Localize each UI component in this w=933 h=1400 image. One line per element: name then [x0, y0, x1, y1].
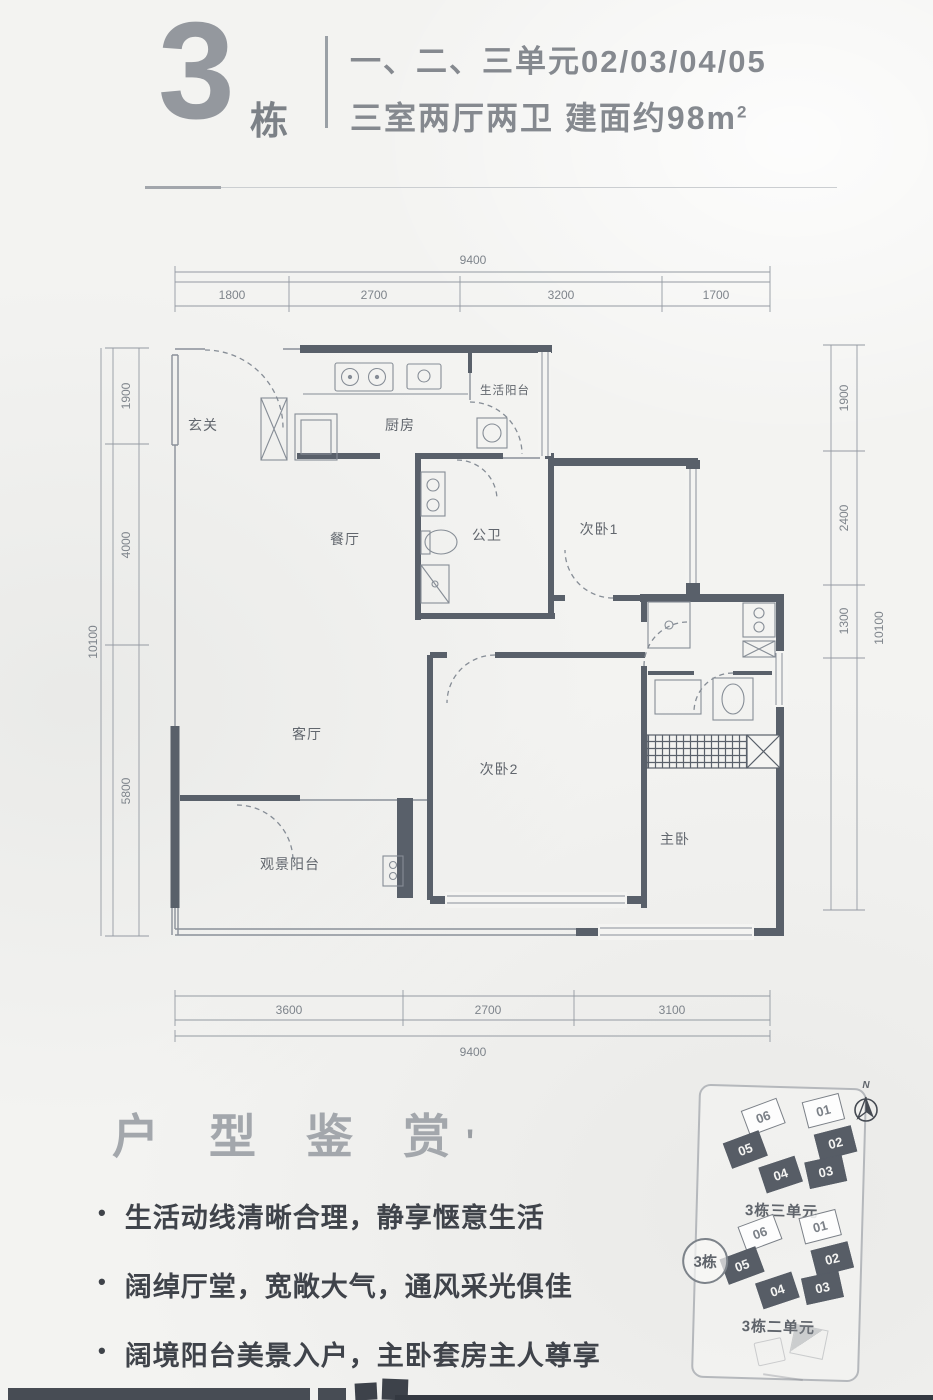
room-label-entry: 玄关: [188, 417, 218, 433]
north-arrow: [849, 1091, 883, 1125]
wardrobe: [647, 735, 780, 768]
floor-plan-drawing: 9400 1800 2700 3200 1700 3600 2700 3100 …: [85, 248, 933, 1080]
unit-box: 03: [801, 1270, 844, 1305]
dim-left-seg0: 1900: [119, 382, 133, 409]
faded-sketch: [753, 1337, 786, 1366]
feature-list: •生活动线清晰合理，静享惬意生活 •阔绰厅堂，宽敞大气，通风采光俱佳 •阔境阳台…: [90, 1196, 710, 1400]
door-arcs: [205, 350, 733, 861]
room-label-bedroom2: 次卧2: [480, 761, 519, 777]
dim-left-seg1: 4000: [119, 531, 133, 558]
section-title-text: 户型鉴赏: [112, 1110, 500, 1163]
dim-right-seg0: 1900: [837, 384, 851, 411]
dim-right-seg1: 2400: [837, 504, 851, 531]
unit-cluster-three: 06 01 02 03 04 05: [718, 1102, 853, 1200]
dim-bottom-overall: 9400: [460, 1045, 487, 1059]
room-label-kitchen: 厨房: [385, 417, 415, 433]
bullet-icon: •: [98, 1338, 107, 1364]
dim-right-overall: 10100: [872, 611, 886, 645]
unit-box: 05: [723, 1130, 768, 1169]
room-label-living: 客厅: [292, 726, 322, 742]
dim-top-seg2: 3200: [548, 288, 575, 302]
header-units-line: 一、二、三单元02/03/04/05: [350, 36, 767, 81]
unit-cluster-two: 06 01 02 03 04 05: [715, 1218, 850, 1316]
spec-text: 三室两厅两卫 建面约98m: [350, 100, 737, 136]
unit-box: 03: [804, 1155, 847, 1190]
unit-box: 04: [758, 1156, 803, 1194]
dim-top-seg1: 2700: [361, 288, 388, 302]
dim-bottom-seg1: 2700: [475, 1003, 502, 1017]
dim-left-seg2: 5800: [119, 777, 133, 804]
faded-sketch: [789, 1324, 828, 1360]
dim-top-overall: 9400: [460, 253, 487, 267]
room-label-service-balcony: 生活阳台: [480, 383, 530, 397]
building-number-suffix: 栋: [250, 90, 288, 145]
dim-left-overall: 10100: [86, 625, 100, 659]
cluster-label-two: 3栋二单元: [694, 1314, 863, 1340]
site-map-panel: 06 01 02 03 04 05 3栋三单元 06 01 02 03 04 0…: [691, 1084, 867, 1383]
exterior-walls: [175, 349, 784, 936]
cutoff-line: [395, 1395, 933, 1400]
header-rule: [145, 187, 837, 188]
compass-icon: N: [848, 1080, 884, 1128]
feature-text: 阔绰厅堂，宽敞大气，通风采光俱佳: [125, 1265, 573, 1304]
header-spec-line: 三室两厅两卫 建面约98m2: [350, 93, 767, 139]
dim-left: [101, 348, 149, 936]
faded-sketch: [763, 1373, 803, 1381]
unit-box: 06: [737, 1214, 782, 1253]
bullet-icon: •: [98, 1269, 107, 1295]
cutoff-glyph: [355, 1382, 378, 1400]
dim-top-seg3: 1700: [703, 288, 730, 302]
dim-top-seg0: 1800: [219, 288, 246, 302]
north-label: N: [848, 1080, 884, 1091]
dim-top: [175, 266, 770, 312]
spec-superscript: 2: [737, 102, 748, 121]
feature-text: 阔境阳台美景入户，主卧套房主人尊享: [125, 1334, 601, 1373]
floor-plan: 9400 1800 2700 3200 1700 3600 2700 3100 …: [85, 248, 933, 1080]
interior-walls: [297, 453, 778, 908]
feature-item: •生活动线清晰合理，静享惬意生活: [90, 1196, 710, 1235]
section-title-mark: ': [466, 1123, 474, 1161]
dim-bottom-seg0: 3600: [276, 1003, 303, 1017]
room-label-view-balcony: 观景阳台: [260, 856, 320, 872]
room-label-bedroom1: 次卧1: [580, 521, 619, 537]
building-number: 3: [158, 2, 231, 140]
feature-text: 生活动线清晰合理，静享惬意生活: [125, 1196, 545, 1235]
room-label-dining: 餐厅: [330, 531, 360, 547]
feature-item: •阔境阳台美景入户，主卧套房主人尊享: [90, 1334, 710, 1373]
dim-bottom-seg2: 3100: [659, 1003, 686, 1017]
cutoff-wall-bar: [318, 1388, 346, 1400]
unit-box: 04: [755, 1272, 800, 1310]
room-label-guest-bath: 公卫: [472, 527, 502, 543]
flyer-page: 3 栋 一、二、三单元02/03/04/05 三室两厅两卫 建面约98m2 94…: [0, 0, 933, 1400]
unit-box: 01: [802, 1093, 846, 1129]
header-rule-accent: [145, 186, 221, 189]
unit-box: 06: [741, 1098, 786, 1137]
fixtures: [261, 363, 775, 886]
cutoff-wall-bar: [8, 1388, 310, 1400]
bullet-icon: •: [98, 1200, 107, 1226]
header-text-block: 一、二、三单元02/03/04/05 三室两厅两卫 建面约98m2: [350, 36, 767, 139]
room-label-master: 主卧: [660, 831, 690, 847]
header-divider: [325, 36, 328, 128]
feature-item: •阔绰厅堂，宽敞大气，通风采光俱佳: [90, 1265, 710, 1304]
section-title: 户型鉴赏': [112, 1098, 474, 1167]
dim-right-seg2: 1300: [837, 607, 851, 634]
thin-walls: [172, 349, 578, 935]
